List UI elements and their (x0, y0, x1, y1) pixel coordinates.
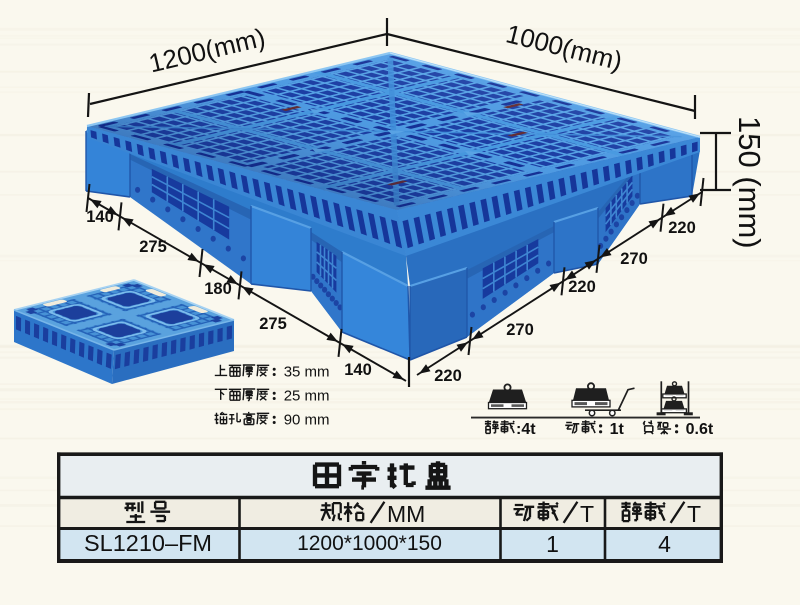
svg-text:220: 220 (568, 278, 596, 296)
svg-text:4: 4 (658, 531, 671, 557)
svg-text:T: T (580, 501, 594, 527)
svg-text:35 mm: 35 mm (284, 364, 330, 381)
svg-text:275: 275 (259, 315, 287, 333)
svg-text:0.6t: 0.6t (686, 421, 714, 438)
svg-text:270: 270 (620, 250, 648, 268)
svg-text:SL1210–FM: SL1210–FM (84, 530, 212, 556)
svg-text:220: 220 (434, 367, 462, 385)
svg-text::4t: :4t (516, 421, 536, 438)
svg-text:270: 270 (506, 321, 534, 339)
svg-text:140: 140 (344, 361, 372, 379)
svg-text:90 mm: 90 mm (284, 412, 330, 429)
svg-text:MM: MM (387, 501, 425, 527)
svg-text:25 mm: 25 mm (284, 388, 330, 405)
svg-text:140: 140 (86, 208, 114, 226)
svg-text:180: 180 (204, 280, 232, 298)
svg-text:T: T (687, 501, 701, 527)
svg-text:1200*1000*150: 1200*1000*150 (297, 532, 442, 555)
svg-text:150 (mm): 150 (mm) (732, 116, 767, 249)
svg-text:1: 1 (546, 531, 559, 557)
svg-text:1t: 1t (610, 421, 625, 438)
svg-text:220: 220 (668, 219, 696, 237)
svg-text:275: 275 (139, 238, 167, 256)
